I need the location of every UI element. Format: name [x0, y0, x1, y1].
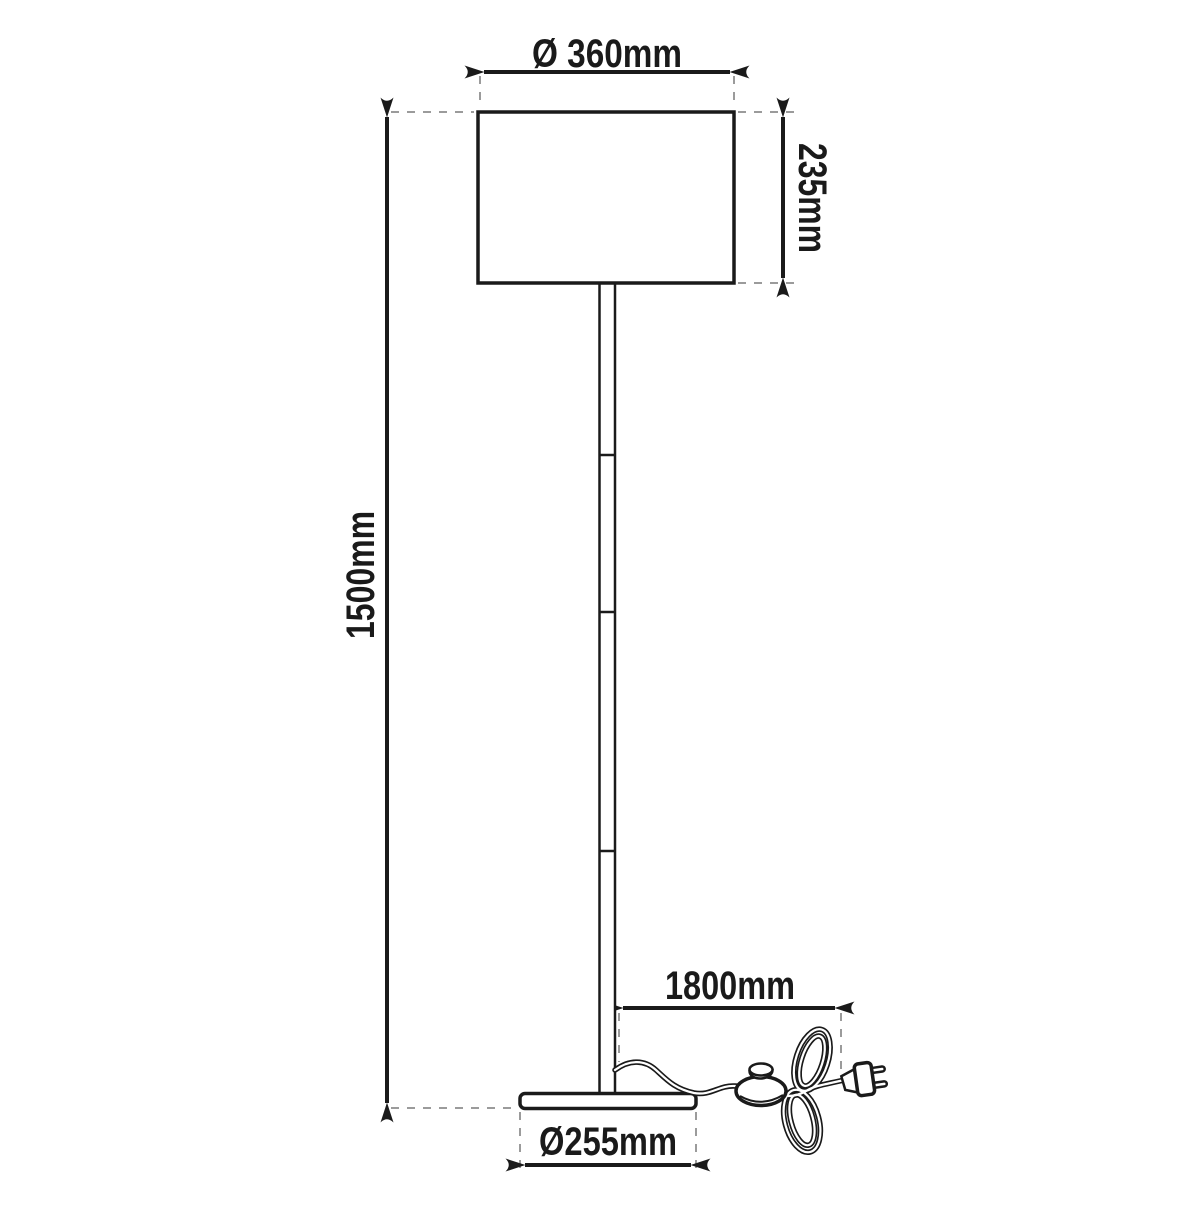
power-plug: [840, 1060, 888, 1098]
foot-switch-button-top: [750, 1064, 773, 1076]
lamp-shade: [478, 112, 734, 283]
lamp-height-label: 1500mm: [339, 511, 383, 639]
cable-length-label: 1800mm: [665, 964, 795, 1008]
technical-drawing: Ø 360mm 235mm 1500mm 1800mm Ø255mm: [0, 0, 1200, 1200]
plug-head: [854, 1062, 875, 1096]
drawing-canvas: Ø 360mm 235mm 1500mm 1800mm Ø255mm: [0, 0, 1200, 1200]
shade-height-label: 235mm: [790, 143, 834, 253]
shade-diameter-label: Ø 360mm: [532, 32, 682, 76]
foot-switch: [736, 1064, 786, 1106]
base-diameter-label: Ø255mm: [539, 1120, 677, 1164]
floor-lamp: [478, 112, 734, 1109]
lamp-base: [520, 1094, 696, 1109]
lamp-pole: [600, 283, 616, 1094]
